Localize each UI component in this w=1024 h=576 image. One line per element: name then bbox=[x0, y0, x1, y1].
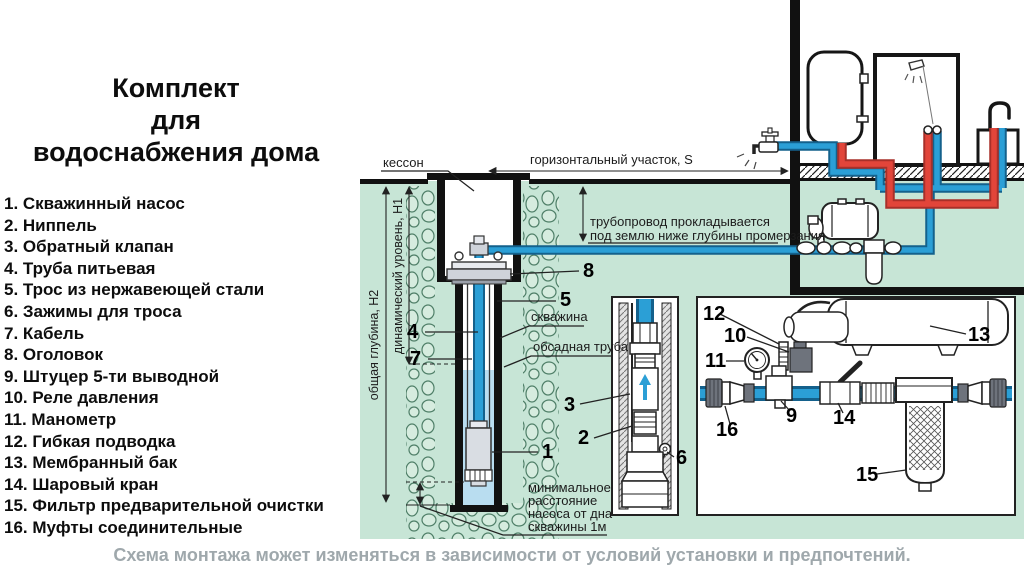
basement-floor bbox=[790, 287, 1024, 295]
shower-hot-tap-icon bbox=[924, 126, 932, 134]
callout-9: 9 bbox=[786, 405, 797, 427]
label-dynamic-level: динамический уровень, Н1 bbox=[391, 198, 405, 354]
inset-pipe bbox=[639, 299, 651, 325]
borehole-pump-icon bbox=[465, 421, 492, 486]
label-horizontal-section: горизонтальный участок, S bbox=[530, 152, 693, 167]
callout-6: 6 bbox=[676, 447, 687, 469]
callout-3: 3 bbox=[564, 394, 575, 416]
caisson-lid bbox=[427, 173, 530, 180]
label-min-dist-4: скважины 1м bbox=[528, 519, 607, 534]
callout-13: 13 bbox=[968, 324, 990, 346]
installation-diagram: кессон горизонтальный участок, S трубопр… bbox=[0, 0, 1024, 576]
label-pipeline-note-2: под землю ниже глубины промерзания bbox=[590, 228, 825, 243]
callout-14: 14 bbox=[833, 407, 856, 429]
label-pipeline-note-1: трубопровод прокладывается bbox=[590, 214, 770, 229]
callout-15: 15 bbox=[856, 464, 878, 486]
label-casing-pipe: обсадная труба bbox=[533, 339, 629, 354]
well bbox=[450, 282, 508, 512]
callout-7: 7 bbox=[410, 348, 421, 370]
outdoor-faucet-icon bbox=[737, 128, 778, 169]
callout-8: 8 bbox=[583, 260, 594, 282]
shower-cold-tap-icon bbox=[933, 126, 941, 134]
pump-assembly-inset bbox=[612, 297, 678, 515]
drop-pipe bbox=[475, 284, 483, 430]
callout-2: 2 bbox=[578, 427, 589, 449]
shower-cabin-icon bbox=[875, 55, 958, 165]
callout-4: 4 bbox=[407, 321, 419, 343]
well-bottom bbox=[450, 505, 508, 512]
ground-surface-right bbox=[529, 179, 791, 184]
label-borehole: скважина bbox=[531, 309, 588, 324]
callout-11: 11 bbox=[705, 350, 726, 372]
nipple-icon bbox=[634, 412, 656, 434]
callout-16: 16 bbox=[716, 419, 738, 441]
membrane-tank-icon bbox=[822, 203, 878, 239]
casing-left bbox=[455, 282, 463, 510]
label-total-depth: общая глубина, Н2 bbox=[367, 290, 381, 401]
label-kesson: кессон bbox=[383, 155, 424, 170]
callout-1: 1 bbox=[542, 441, 553, 463]
prefilter-basement-icon bbox=[864, 240, 884, 284]
water-heater-icon bbox=[808, 52, 868, 144]
callout-10: 10 bbox=[724, 325, 746, 347]
caisson-wall-right bbox=[513, 180, 521, 282]
callout-5: 5 bbox=[560, 289, 571, 311]
callout-12: 12 bbox=[703, 303, 725, 325]
ground-surface-left bbox=[360, 179, 428, 184]
bellows-connector-icon bbox=[862, 383, 894, 403]
caisson-wall-left bbox=[437, 180, 445, 282]
inset-coupling-icon bbox=[633, 323, 657, 343]
check-valve-icon bbox=[632, 368, 658, 410]
screenshot-canvas: Комплект для водоснабжения дома 1. Скваж… bbox=[0, 0, 1024, 576]
casing-right bbox=[494, 282, 502, 510]
footer-caption: Схема монтажа может изменяться в зависим… bbox=[0, 545, 1024, 566]
